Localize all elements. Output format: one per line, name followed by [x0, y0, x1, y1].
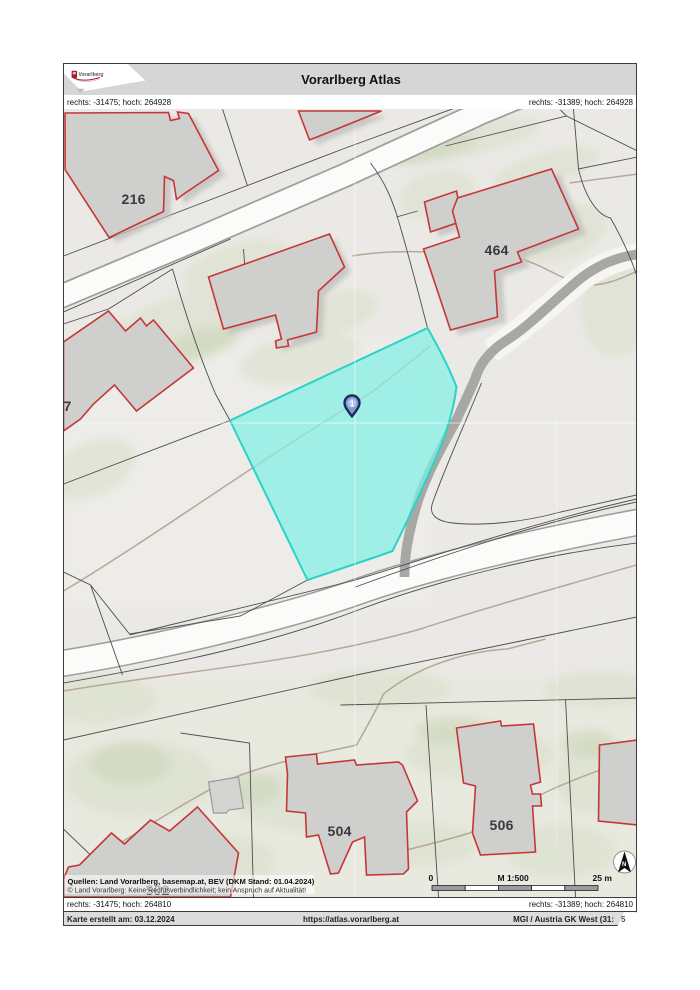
- svg-text:25 m: 25 m: [593, 873, 613, 883]
- svg-text:0: 0: [429, 873, 434, 883]
- svg-text:Quellen: Land Vorarlberg, base: Quellen: Land Vorarlberg, basemap.at, BE…: [68, 877, 315, 886]
- svg-text:506: 506: [490, 817, 514, 833]
- svg-text:504: 504: [328, 823, 352, 839]
- svg-text:5: 5: [621, 915, 626, 924]
- svg-text:M 1:500: M 1:500: [498, 873, 529, 883]
- svg-text:N: N: [622, 862, 626, 868]
- svg-text:7: 7: [64, 398, 72, 414]
- svg-text:1: 1: [350, 398, 355, 408]
- svg-text:© Land Vorarlberg: Keine Recht: © Land Vorarlberg: Keine Rechtsverbindli…: [68, 887, 307, 895]
- svg-text:216: 216: [122, 191, 146, 207]
- svg-text:464: 464: [485, 242, 509, 258]
